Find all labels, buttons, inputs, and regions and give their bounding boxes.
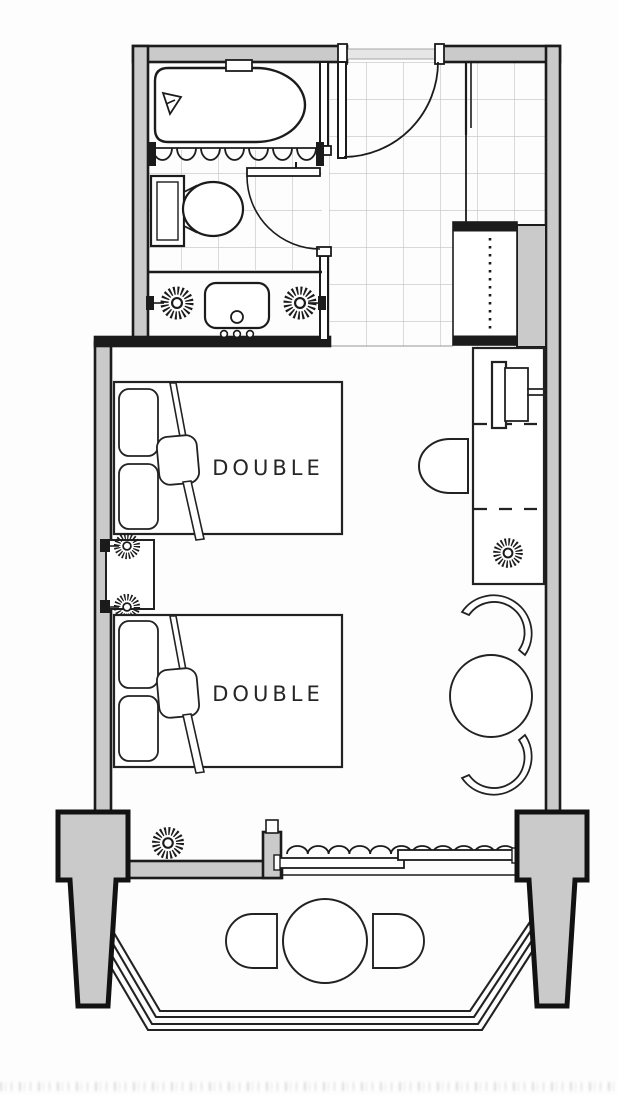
balcony-chair-icon xyxy=(226,914,277,968)
bottom-wall-segment xyxy=(110,861,282,878)
sliding-door-panels-icon xyxy=(277,858,404,868)
curtain-end-block xyxy=(316,142,324,166)
balcony-chair-icon xyxy=(373,914,424,968)
tv-on-console-icon xyxy=(492,362,506,428)
faucet-knob xyxy=(247,331,254,338)
round-table-icon xyxy=(283,899,367,983)
right-wall xyxy=(546,46,560,814)
curtain-end-block xyxy=(148,142,156,166)
toilet-tank-inner xyxy=(157,182,178,240)
panel-end-block xyxy=(274,855,280,870)
bathroom-east-wall-upper xyxy=(320,62,328,146)
folded-blanket xyxy=(156,667,200,718)
toilet-bowl xyxy=(183,182,243,236)
wardrobe-bottom-edge xyxy=(453,336,517,345)
folded-blanket xyxy=(156,434,200,485)
bathtub-outline xyxy=(155,68,305,142)
wardrobe-body xyxy=(453,222,517,345)
top-wall-right-segment xyxy=(438,46,560,62)
entry-threshold xyxy=(347,49,438,59)
round-table-icon xyxy=(450,655,532,737)
sliding-door-panel xyxy=(398,850,514,860)
bathroom-left-wall xyxy=(133,46,148,342)
floor-plan-drawing: DOUBLE DOUBLE xyxy=(0,0,618,1095)
bathroom-bedroom-divider-wall xyxy=(95,337,330,346)
floor-plan: DOUBLE DOUBLE xyxy=(0,0,618,1095)
pillow xyxy=(119,389,158,456)
wardrobe-top-edge xyxy=(453,222,517,231)
wall-mount-block xyxy=(100,539,110,552)
wall-mount-block xyxy=(100,600,110,613)
jamb-cap xyxy=(266,820,278,833)
tub-soap-ledge xyxy=(226,60,252,71)
pillow xyxy=(119,621,158,688)
faucet-knob xyxy=(221,331,228,338)
bed-label: DOUBLE xyxy=(212,682,323,706)
tv-body xyxy=(505,368,528,421)
scan-artifact-strip xyxy=(0,1082,618,1091)
tv-console xyxy=(473,348,547,584)
faucet-knob xyxy=(234,331,241,338)
door-jamb-right xyxy=(435,44,444,64)
pillow xyxy=(119,464,158,529)
closet-back-wall xyxy=(517,225,546,347)
pillow xyxy=(119,696,158,761)
bed-label: DOUBLE xyxy=(212,456,323,480)
bed-double-1: DOUBLE xyxy=(114,382,342,540)
sink-drain xyxy=(231,311,243,323)
bathroom-door-leaf xyxy=(247,168,320,176)
bed-double-2: DOUBLE xyxy=(114,615,342,773)
wall-mount-block xyxy=(318,296,326,310)
wall-mount-block xyxy=(146,296,154,310)
entry-door-leaf xyxy=(338,62,346,158)
nightstand xyxy=(100,536,154,617)
